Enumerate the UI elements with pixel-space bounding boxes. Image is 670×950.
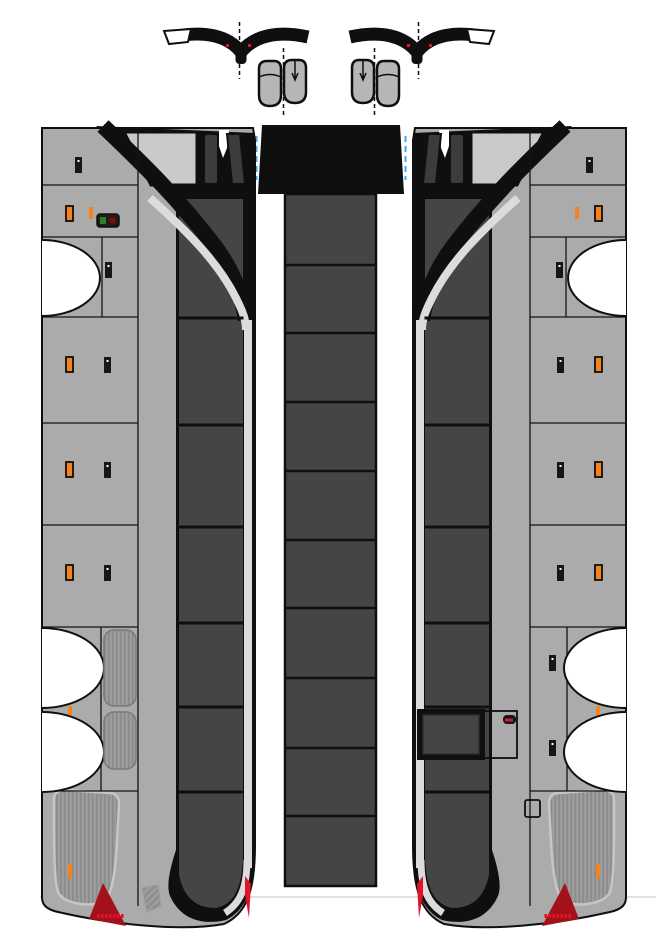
mirror-assembly-left bbox=[164, 22, 308, 115]
door-control-buttons bbox=[97, 214, 119, 227]
mirror-assembly-right bbox=[350, 22, 494, 115]
red-button bbox=[109, 217, 116, 224]
handle-dot bbox=[552, 658, 554, 660]
green-button bbox=[100, 217, 106, 224]
bus-left-side-piece bbox=[42, 126, 255, 927]
papercraft-sheet bbox=[0, 0, 670, 950]
door-handle bbox=[549, 655, 556, 671]
roof-strip-piece bbox=[257, 125, 406, 886]
door-window bbox=[420, 712, 482, 757]
roof-front-cap bbox=[258, 125, 404, 194]
door-handle bbox=[549, 740, 556, 756]
side-grille-lower bbox=[104, 712, 136, 769]
bus-right-side-piece bbox=[413, 126, 626, 927]
door-sensor-light bbox=[505, 719, 513, 722]
handle-dot bbox=[552, 743, 554, 745]
side-grille-upper bbox=[104, 630, 136, 706]
